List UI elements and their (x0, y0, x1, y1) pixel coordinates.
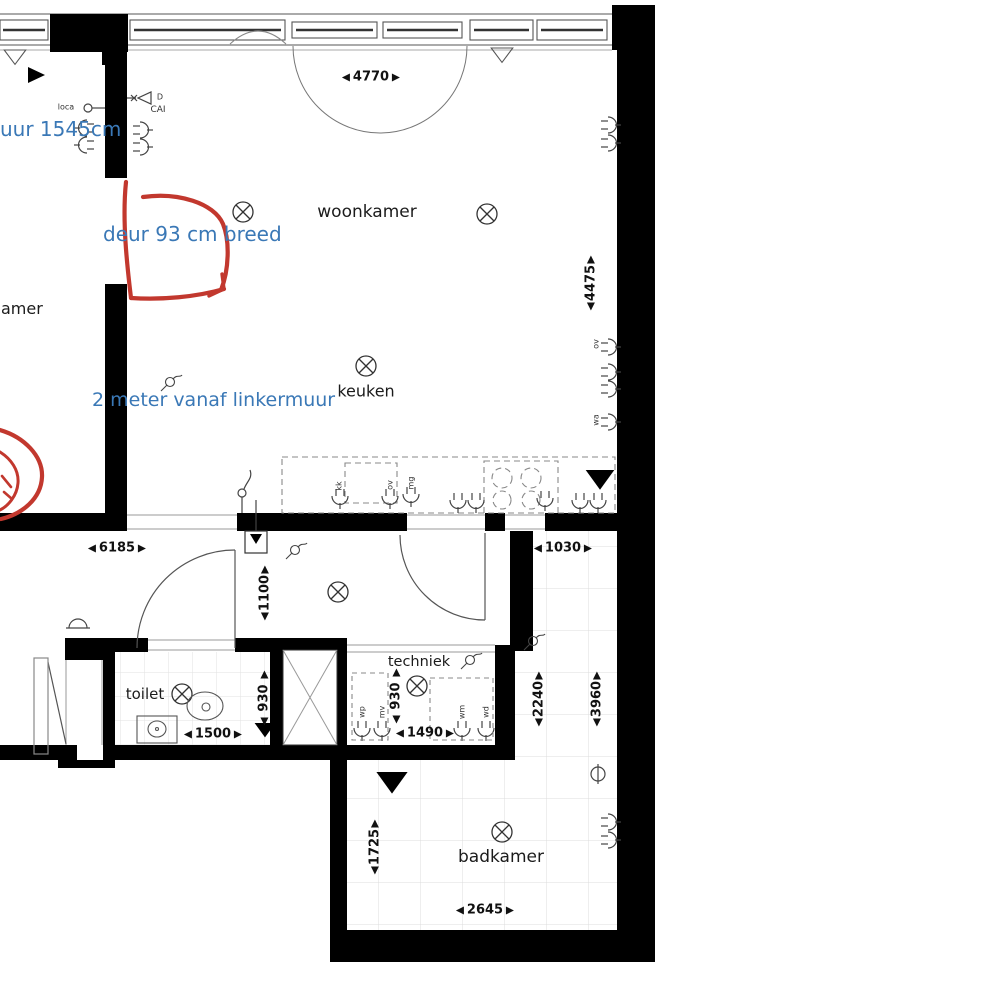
arrow-right-icon (28, 67, 45, 83)
note-door-width: deur 93 cm breed (103, 222, 282, 246)
room-label-woonkamer: woonkamer (317, 202, 416, 222)
dim-bath-lower-height: 1725 (357, 816, 393, 879)
label-d: D (157, 93, 163, 102)
dim-living-height: 4475 (573, 252, 609, 315)
dim-hall-depth: 1100 (247, 562, 283, 625)
label-mg: mg (407, 477, 416, 490)
dim-bath-upper-height: 2240 (521, 668, 557, 731)
dim-toilet-height: 930 (250, 667, 277, 730)
dim-bath-right-height: 3960 (579, 668, 615, 731)
dim-top-width: 4770 (338, 70, 404, 85)
dim-toilet-width: 1500 (180, 727, 246, 742)
spotlight-icon (138, 92, 151, 104)
label-wa: wa (592, 414, 601, 425)
label-wm: wm (458, 705, 467, 719)
label-ov2: ov (592, 339, 601, 349)
room-label-toilet: toilet (126, 685, 165, 703)
kitchen-counter (282, 457, 615, 513)
red-left-markup (0, 430, 42, 519)
room-label-partial: amer (1, 299, 43, 318)
room-label-badkamer: badkamer (458, 847, 544, 867)
vent-triangle-icon (4, 50, 26, 64)
label-kk: kk (335, 481, 344, 490)
note-kitchen-distance: 2 meter vanaf linkermuur (92, 389, 335, 411)
shaft (283, 650, 337, 745)
dim-techniek-width: 1490 (392, 726, 458, 741)
note-wall-length: uur 1545cm (0, 117, 121, 141)
label-cai: CAI (150, 105, 165, 115)
switch-icon (238, 489, 246, 497)
label-mv: mv (378, 706, 387, 719)
label-ov: ov (386, 480, 395, 490)
entry-triangle-icon (586, 470, 615, 490)
room-label-keuken: keuken (337, 382, 394, 401)
balcony-door-swing-arcs (293, 46, 467, 133)
dim-corridor-width: 1030 (530, 541, 596, 556)
label-wd: wd (482, 706, 491, 718)
dim-hall-width: 6185 (84, 541, 150, 556)
doorbell-icon (66, 619, 90, 628)
dim-bath-width: 2645 (452, 903, 518, 918)
floor-plan: amer woonkamer keuken toilet techniek ba… (0, 0, 1000, 1000)
dim-techniek-height: 930 (382, 665, 409, 728)
label-wp: wp (358, 706, 367, 718)
label-loca: loca (58, 103, 74, 112)
